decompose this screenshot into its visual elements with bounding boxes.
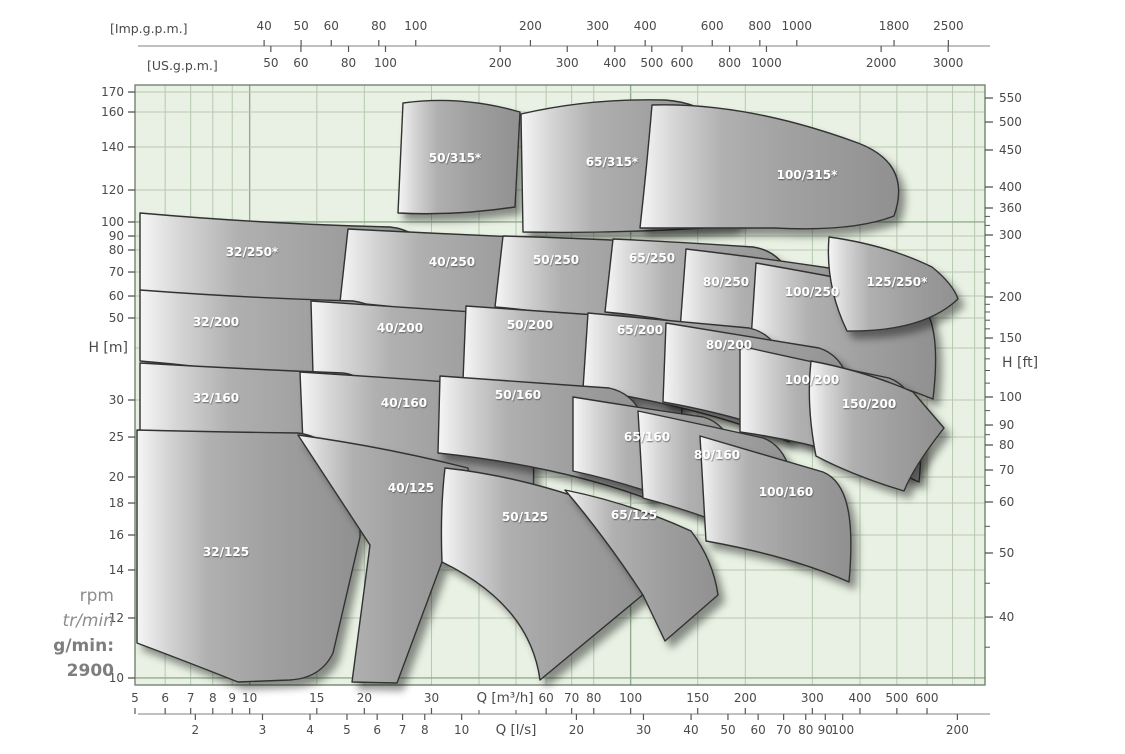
- axis-tick-label: 500: [885, 691, 908, 705]
- pump-region-label: 100/200: [785, 373, 839, 387]
- axis-tick-label: 50: [109, 311, 124, 325]
- axis-tick-label: 18: [109, 496, 124, 510]
- axis-tick-label: 30: [424, 691, 439, 705]
- pump-region-label: 100/250: [785, 285, 839, 299]
- axis-tick-label: 400: [603, 56, 626, 70]
- pump-performance-chart: 50/315*65/315*100/315*32/250*40/25050/25…: [0, 0, 1125, 754]
- axis-tick-label: 40: [256, 19, 271, 33]
- axis-tick-label: 170: [101, 85, 124, 99]
- axis-tick-label: 160: [101, 105, 124, 119]
- axis-tick-label: 120: [101, 183, 124, 197]
- pump-region-label: 65/160: [624, 430, 670, 444]
- pump-region-label: 150/200: [842, 397, 896, 411]
- pump-region-label: 40/250: [429, 255, 475, 269]
- axis-tick-label: 60: [750, 723, 765, 737]
- axis-tick-label: 30: [109, 393, 124, 407]
- flow-m3h-axis-title: Q [m³/h]: [465, 690, 545, 706]
- axis-tick-label: 300: [801, 691, 824, 705]
- axis-tick-label: 80: [341, 56, 356, 70]
- axis-tick-label: 30: [636, 723, 651, 737]
- axis-tick-label: 20: [569, 723, 584, 737]
- pump-region-label: 50/160: [495, 388, 541, 402]
- axis-tick-label: 800: [718, 56, 741, 70]
- axis-tick-label: 15: [309, 691, 324, 705]
- pump-region-label: 50/200: [507, 318, 553, 332]
- axis-tick-label: 80: [798, 723, 813, 737]
- axis-tick-label: 100: [999, 390, 1022, 404]
- pump-region-label: 65/315*: [586, 155, 639, 169]
- axis-tick-label: 3000: [933, 56, 964, 70]
- axis-tick-label: 450: [999, 143, 1022, 157]
- pump-region-label: 125/250*: [867, 275, 928, 289]
- axis-tick-label: 2000: [866, 56, 897, 70]
- axis-tick-label: 70: [109, 265, 124, 279]
- pump-region-label: 80/250: [703, 275, 749, 289]
- axis-tick-label: 16: [109, 528, 124, 542]
- pump-region-label: 100/315*: [777, 168, 838, 182]
- pump-region-label: 65/125: [611, 508, 657, 522]
- head-ft-axis-title: H [ft]: [1002, 355, 1038, 371]
- rpm-label: rpm: [10, 584, 114, 609]
- speed-annotation: rpm tr/min g/min: 2900: [10, 584, 114, 684]
- top-flow-axes: 4050608010020030040060080010001800250050…: [138, 19, 990, 70]
- axis-tick-label: 50: [999, 546, 1014, 560]
- axis-tick-label: 20: [109, 470, 124, 484]
- axis-tick-label: 60: [999, 495, 1014, 509]
- axis-tick-label: 70: [564, 691, 579, 705]
- axis-tick-label: 90: [999, 418, 1014, 432]
- axis-tick-label: 200: [734, 691, 757, 705]
- axis-tick-label: 2500: [933, 19, 964, 33]
- axis-tick-label: 8: [421, 723, 429, 737]
- axis-tick-label: 1800: [879, 19, 910, 33]
- axis-tick-label: 300: [556, 56, 579, 70]
- axis-tick-label: 200: [519, 19, 542, 33]
- axis-tick-label: 200: [946, 723, 969, 737]
- axis-tick-label: 50: [263, 56, 278, 70]
- axis-tick-label: 100: [101, 215, 124, 229]
- axis-tick-label: 100: [404, 19, 427, 33]
- axis-tick-label: 40: [683, 723, 698, 737]
- tr-min-label: tr/min: [10, 609, 114, 634]
- axis-tick-label: 800: [748, 19, 771, 33]
- axis-tick-label: 200: [999, 290, 1022, 304]
- axis-tick-label: 360: [999, 201, 1022, 215]
- axis-tick-label: 5: [343, 723, 351, 737]
- axis-tick-label: 60: [109, 289, 124, 303]
- axis-tick-label: 70: [999, 463, 1014, 477]
- axis-tick-label: 400: [849, 691, 872, 705]
- g-min-label: g/min:: [10, 634, 114, 659]
- axis-tick-label: 600: [916, 691, 939, 705]
- axis-tick-label: 600: [671, 56, 694, 70]
- pump-region-label: 50/250: [533, 253, 579, 267]
- imp-gpm-unit-label: [Imp.g.p.m.]: [110, 21, 188, 36]
- pump-region-label: 100/160: [759, 485, 813, 499]
- pump-region-label: 80/200: [706, 338, 752, 352]
- axis-tick-label: 550: [999, 91, 1022, 105]
- axis-tick-label: 60: [293, 56, 308, 70]
- axis-tick-label: 6: [161, 691, 169, 705]
- axis-tick-label: 7: [399, 723, 407, 737]
- axis-tick-label: 40: [999, 610, 1014, 624]
- axis-tick-label: 1000: [782, 19, 813, 33]
- axis-tick-label: 150: [999, 331, 1022, 345]
- axis-tick-label: 400: [634, 19, 657, 33]
- axis-tick-label: 90: [109, 229, 124, 243]
- pump-region-label: 40/125: [388, 481, 434, 495]
- flow-ls-axis-title: Q [l/s]: [476, 722, 556, 738]
- axis-tick-label: 2: [192, 723, 200, 737]
- axis-tick-label: 10: [454, 723, 469, 737]
- pump-region-label: 65/200: [617, 323, 663, 337]
- us-gpm-unit-label: [US.g.p.m.]: [147, 58, 218, 73]
- pump-region-label: 32/200: [193, 315, 239, 329]
- axis-tick-label: 100: [619, 691, 642, 705]
- pump-region-label: 65/250: [629, 251, 675, 265]
- axis-tick-label: 80: [371, 19, 386, 33]
- pump-region-label: 50/315*: [429, 151, 482, 165]
- axis-tick-label: 20: [357, 691, 372, 705]
- axis-tick-label: 10: [242, 691, 257, 705]
- axis-tick-label: 50: [293, 19, 308, 33]
- head-m-axis-title: H [m]: [58, 340, 128, 356]
- pump-region-label: 40/160: [381, 396, 427, 410]
- pump-region-label: 50/125: [502, 510, 548, 524]
- axis-tick-label: 5: [131, 691, 139, 705]
- axis-tick-label: 8: [209, 691, 217, 705]
- axis-tick-label: 500: [640, 56, 663, 70]
- axis-tick-label: 70: [776, 723, 791, 737]
- pump-region-label: 32/125: [203, 545, 249, 559]
- axis-tick-label: 1000: [751, 56, 782, 70]
- axis-tick-label: 300: [586, 19, 609, 33]
- axis-tick-label: 80: [999, 438, 1014, 452]
- axis-tick-label: 60: [324, 19, 339, 33]
- axis-tick-label: 50: [720, 723, 735, 737]
- axis-tick-label: 100: [374, 56, 397, 70]
- pump-chart-canvas: 50/315*65/315*100/315*32/250*40/25050/25…: [0, 0, 1125, 754]
- axis-tick-label: 80: [586, 691, 601, 705]
- axis-tick-label: 9: [228, 691, 236, 705]
- axis-tick-label: 6: [373, 723, 381, 737]
- axis-tick-label: 80: [109, 243, 124, 257]
- axis-tick-label: 14: [109, 563, 124, 577]
- pump-region-label: 32/250*: [226, 245, 279, 259]
- axis-tick-label: 300: [999, 228, 1022, 242]
- axis-tick-label: 140: [101, 140, 124, 154]
- speed-value: 2900: [10, 659, 114, 684]
- bottom-flow-axes: 5678910152030607080100150200300400500600…: [131, 691, 990, 737]
- axis-tick-label: 3: [259, 723, 267, 737]
- axis-tick-label: 150: [686, 691, 709, 705]
- pump-region-label: 40/200: [377, 321, 423, 335]
- axis-tick-label: 500: [999, 115, 1022, 129]
- axis-tick-label: 200: [489, 56, 512, 70]
- axis-tick-label: 100: [831, 723, 854, 737]
- axis-tick-label: 25: [109, 430, 124, 444]
- axis-tick-label: 7: [187, 691, 195, 705]
- pump-region-label: 32/160: [193, 391, 239, 405]
- axis-tick-label: 600: [701, 19, 724, 33]
- axis-tick-label: 400: [999, 180, 1022, 194]
- pump-region-label: 80/160: [694, 448, 740, 462]
- axis-tick-label: 4: [306, 723, 314, 737]
